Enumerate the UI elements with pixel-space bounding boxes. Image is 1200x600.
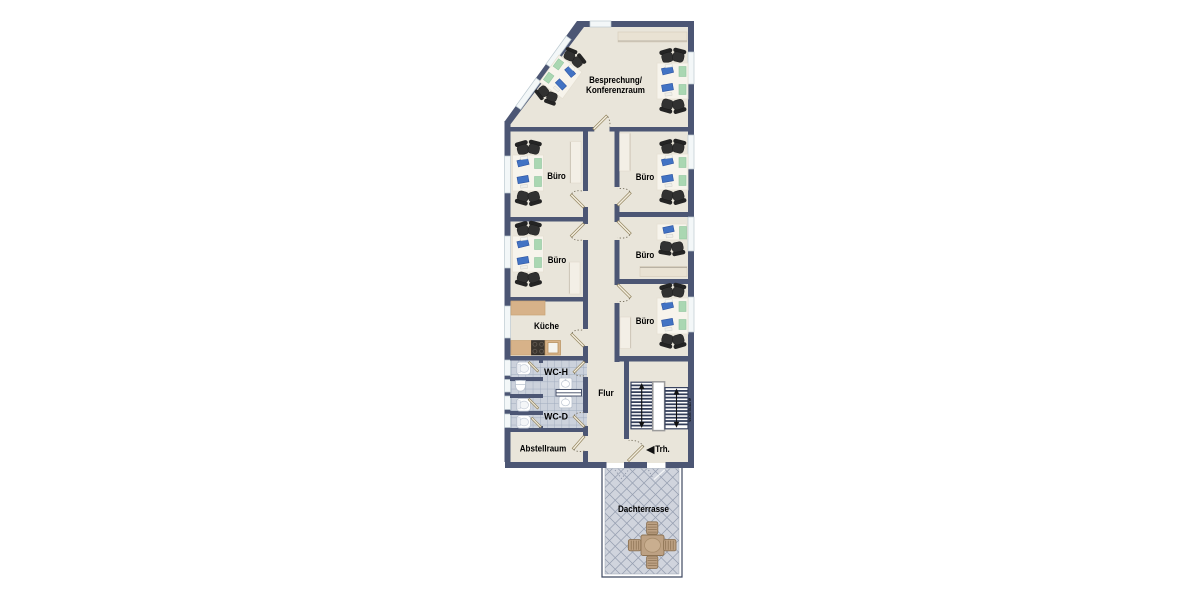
svg-text:Büro: Büro (547, 171, 566, 181)
svg-text:Konferenzraum: Konferenzraum (586, 85, 645, 95)
svg-text:Büro: Büro (636, 250, 655, 260)
svg-text:Besprechung/: Besprechung/ (589, 75, 642, 85)
svg-text:Büro: Büro (548, 255, 567, 265)
svg-text:Abstellraum: Abstellraum (520, 444, 567, 454)
svg-text:Trh.: Trh. (655, 444, 670, 454)
svg-text:Büro: Büro (636, 316, 655, 326)
svg-text:WC-D: WC-D (544, 412, 568, 422)
svg-text:WC-H: WC-H (544, 367, 568, 377)
svg-text:Küche: Küche (534, 321, 559, 331)
svg-text:Flur: Flur (598, 388, 614, 398)
svg-text:Dachterrasse: Dachterrasse (618, 504, 669, 514)
svg-text:Büro: Büro (636, 172, 655, 182)
